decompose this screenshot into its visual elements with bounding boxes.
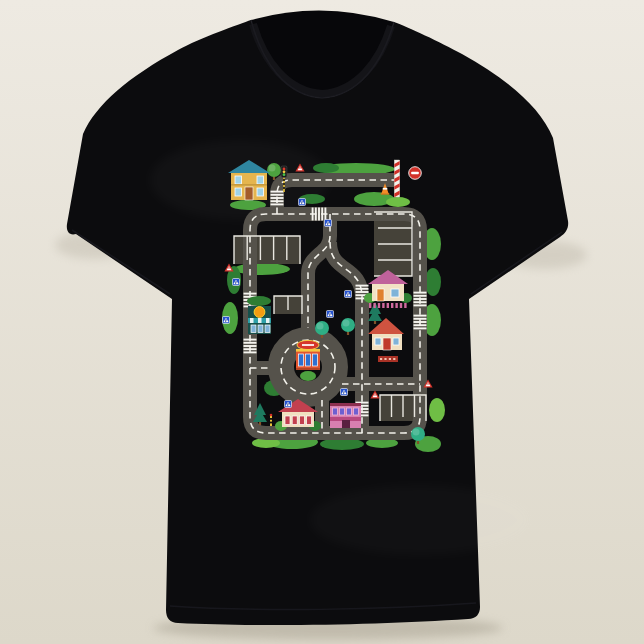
window: [375, 338, 381, 345]
scene-svg: [0, 0, 644, 644]
door: [377, 289, 384, 301]
window: [393, 338, 399, 345]
blue-cross-sign: [325, 220, 332, 227]
window: [265, 325, 270, 333]
door: [383, 338, 391, 350]
door: [299, 354, 304, 366]
fabric-highlight-2: [310, 485, 530, 555]
fence: [395, 303, 397, 308]
window: [340, 408, 345, 415]
fence: [369, 303, 371, 308]
fence: [378, 303, 380, 308]
blue-cross-sign: [299, 199, 306, 206]
orange-sign-shop: [247, 296, 271, 334]
window: [257, 188, 264, 196]
roundabout-station: [296, 340, 320, 370]
window: [391, 289, 399, 297]
fence: [404, 303, 406, 308]
window: [235, 176, 242, 184]
roundabout-island-bush: [300, 371, 316, 381]
window: [347, 408, 352, 415]
door: [342, 420, 350, 428]
window: [299, 416, 304, 425]
hedge-bush: [425, 268, 441, 296]
window: [333, 408, 338, 415]
fence: [382, 303, 384, 308]
blue-cross-sign: [285, 401, 292, 408]
blue-cross-sign: [341, 389, 348, 396]
fence: [391, 303, 393, 308]
fence: [373, 303, 375, 308]
blue-cross-sign: [233, 279, 240, 286]
pink-shop: [330, 403, 361, 428]
window: [292, 416, 297, 425]
blue-cross-sign: [327, 311, 334, 318]
window: [307, 416, 312, 425]
door: [245, 187, 253, 200]
window: [354, 408, 359, 415]
window: [235, 188, 242, 196]
window: [258, 325, 263, 333]
striped-pole-sign: [394, 160, 399, 197]
window: [251, 325, 256, 333]
blue-cross-sign: [345, 291, 352, 298]
tshirt-product-photo: [0, 0, 644, 644]
window: [257, 176, 264, 184]
window: [285, 416, 290, 425]
no-entry-sign: [409, 167, 422, 180]
blue-cross-sign: [223, 317, 230, 324]
fence: [400, 303, 402, 308]
sign-disc: [254, 307, 265, 318]
door: [306, 354, 311, 366]
hedge-bush: [313, 163, 339, 173]
roofline: [330, 403, 361, 406]
hedge-bush: [234, 263, 290, 275]
hedge-bush: [386, 197, 410, 207]
fence: [387, 303, 389, 308]
door: [313, 354, 318, 366]
hedge-bush: [429, 398, 445, 422]
mini-pole-sign: [270, 414, 273, 426]
